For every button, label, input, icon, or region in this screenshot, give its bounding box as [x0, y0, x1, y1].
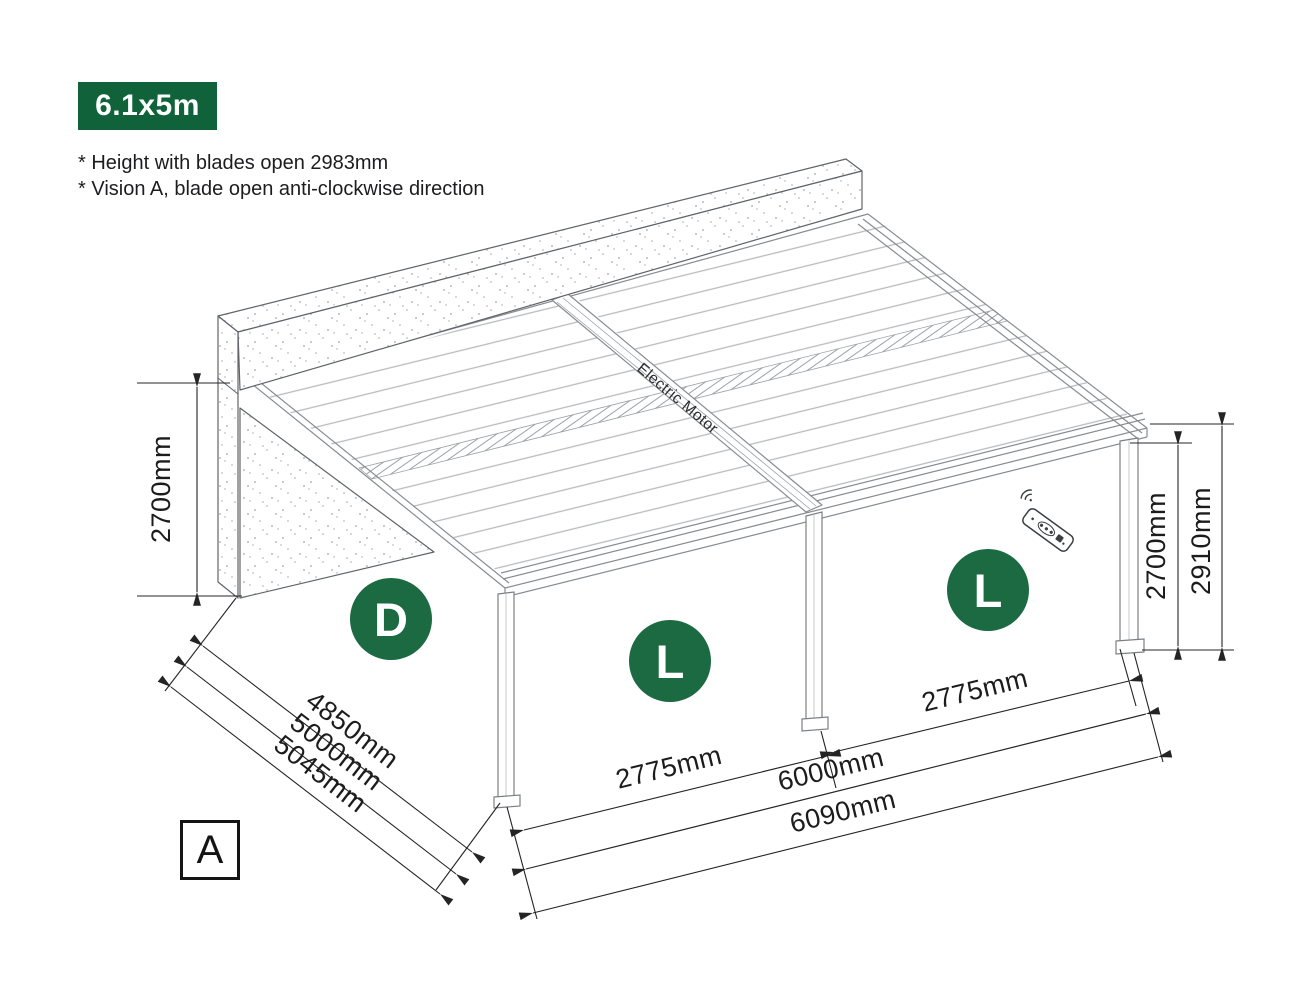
dim-right-heights: 2700mm 2910mm [1130, 424, 1234, 650]
dim-post-height-label: 2700mm [1141, 492, 1171, 600]
marker-l-right: L [947, 549, 1029, 631]
product-size-badge: 6.1x5m [78, 82, 217, 130]
view-label-box: A [180, 820, 240, 880]
post-right [1116, 438, 1144, 654]
marker-l-middle: L [629, 620, 711, 702]
wall-left-edge-strip [218, 316, 238, 598]
note-vision-direction: * Vision A, blade open anti-clockwise di… [78, 176, 485, 202]
zone-markers: D L L [350, 549, 1029, 702]
note-height-open: * Height with blades open 2983mm [78, 150, 485, 176]
signal-waves-icon [1020, 487, 1036, 504]
marker-l-right-letter: L [974, 564, 1003, 617]
remote-control-icon [1009, 487, 1083, 553]
dim-bay-right-label: 2775mm [919, 663, 1031, 718]
view-label: A [197, 828, 224, 873]
notes: * Height with blades open 2983mm * Visio… [78, 150, 485, 202]
dim-width-group: 2775mm 6000mm 6090mm 2775mm [507, 649, 1163, 919]
post-middle [802, 512, 828, 731]
marker-d: D [350, 578, 432, 660]
dim-wall-height-label: 2700mm [146, 435, 176, 543]
pergola-spec-page: Electric Motor [0, 0, 1300, 1000]
dim-overall-height-label: 2910mm [1186, 487, 1216, 595]
post-left [494, 592, 520, 808]
marker-d-letter: D [374, 593, 408, 646]
dim-bay-left-label: 2775mm [613, 740, 725, 795]
marker-l-middle-letter: L [656, 635, 685, 688]
dim-width-overall-label: 6090mm [787, 784, 899, 839]
